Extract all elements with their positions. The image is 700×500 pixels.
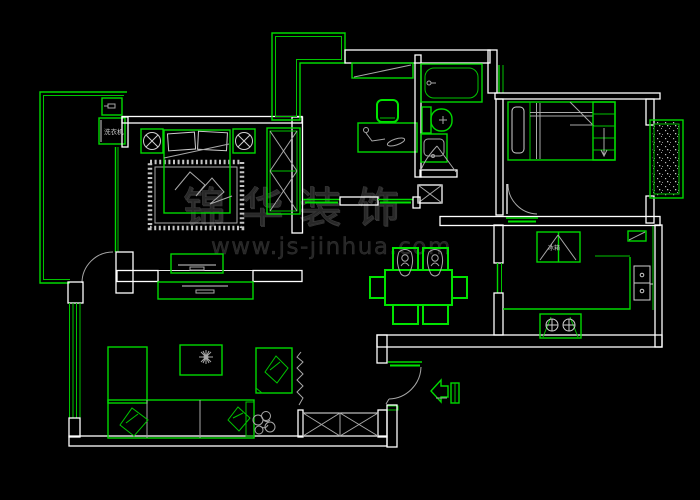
entry-marker (451, 383, 459, 403)
desk-chair (377, 100, 398, 122)
pillow (512, 107, 524, 153)
wall-door-stub (116, 252, 133, 293)
wall (68, 282, 83, 303)
blanket-fold (570, 102, 593, 125)
bookshelf (352, 63, 413, 78)
kitchen-sink (634, 266, 653, 300)
dining-chair (452, 277, 467, 298)
pillow (120, 408, 148, 436)
pillow (167, 132, 195, 151)
bay-window-hatch (646, 99, 683, 223)
window-x-south (298, 410, 387, 437)
wall (440, 217, 660, 226)
watermark-brand: 锦华装饰 (183, 183, 415, 232)
wall (655, 225, 662, 347)
door-swing (508, 184, 537, 214)
dining-chair (393, 305, 418, 324)
armchair (256, 348, 292, 393)
washing-machine-label: 洗衣机 (104, 127, 124, 136)
bathtub (421, 64, 482, 102)
curtain-zigzag (297, 352, 303, 405)
single-bed (508, 102, 615, 160)
floor-plant (253, 412, 275, 435)
entry (377, 335, 459, 447)
wall (69, 418, 80, 437)
wall (345, 50, 490, 63)
fridge: 冰箱 (537, 232, 580, 262)
dining-table (385, 270, 452, 305)
window-west (70, 303, 81, 418)
wall (253, 271, 302, 282)
wall (377, 335, 387, 363)
wall (495, 93, 660, 99)
living-room (68, 282, 387, 446)
wall (387, 405, 397, 447)
nightstand-left (141, 129, 163, 153)
nightstand-right (233, 129, 255, 153)
dining-chair (370, 277, 385, 298)
fridge-label: 冰箱 (548, 244, 560, 252)
counter (503, 256, 630, 309)
desk (358, 123, 417, 152)
toilet (422, 107, 452, 133)
balcony-hatch-top (272, 33, 345, 120)
bathroom (415, 55, 482, 203)
entry-arrow (431, 380, 448, 402)
wall (494, 293, 503, 335)
sofa (108, 347, 254, 438)
wall (117, 271, 158, 282)
pillow (228, 407, 250, 431)
study-room (345, 50, 503, 152)
washing-machine: 洗衣机 (99, 118, 125, 144)
cad-floorplan-canvas: 锦华装饰 锦华装饰 www.js-jinhua.com 洗衣机 (0, 0, 700, 500)
shaft (418, 185, 442, 203)
door-swing (82, 252, 113, 283)
wall-cabinet (628, 231, 646, 241)
table-plant (199, 350, 213, 364)
floorplan-drawing: 锦华装饰 锦华装饰 www.js-jinhua.com 洗衣机 (0, 0, 700, 500)
wall (496, 99, 503, 215)
wall (377, 335, 662, 347)
dining-chair (423, 305, 448, 324)
wall (415, 55, 421, 177)
coffee-table (180, 345, 222, 375)
tv-cabinet (158, 282, 253, 299)
wash-basin (421, 134, 447, 162)
desk-lamp (364, 128, 369, 133)
wall (420, 170, 457, 177)
water-heater (102, 98, 122, 115)
wall (494, 225, 503, 263)
left-balcony: 洗衣机 (40, 92, 127, 283)
second-bedroom (440, 93, 683, 226)
door-swing (389, 367, 421, 399)
